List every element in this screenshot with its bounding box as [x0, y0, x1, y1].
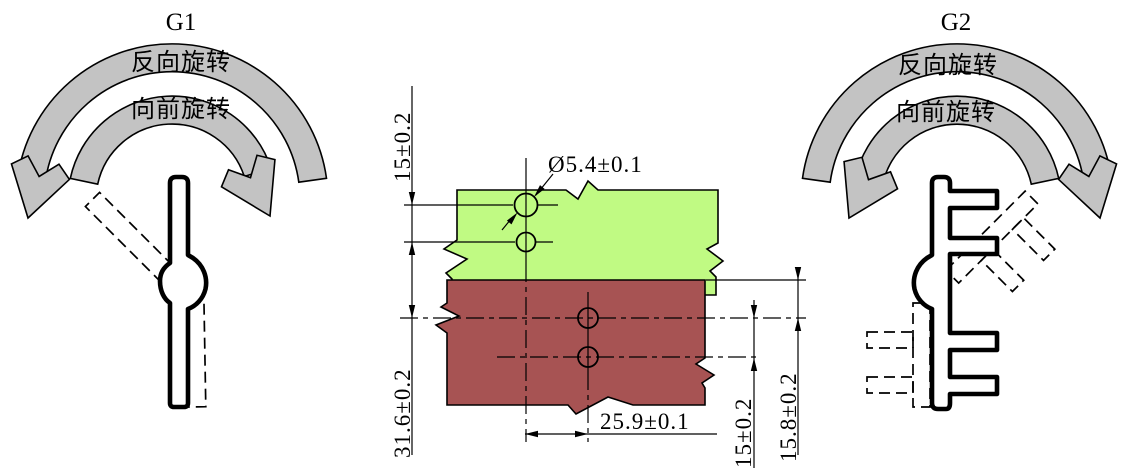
g1-title: G1	[166, 9, 197, 36]
arrow-right-bottom	[575, 431, 588, 437]
g2-lever-ghost-open	[867, 303, 930, 407]
arrow-down-right-inner	[751, 305, 757, 318]
dim-hole-diameter: Ø5.4±0.1	[548, 152, 643, 177]
dim-offset: 25.9±0.1	[600, 409, 690, 434]
mounting-plate-green	[444, 181, 723, 295]
arrow-up-right-inner	[751, 358, 757, 371]
rotation-figure-g2: G2 反向旋转 向前旋转	[803, 9, 1129, 409]
dim-green-to-red: 31.6±0.2	[390, 368, 415, 458]
arrow-down-red-top-hole	[409, 305, 415, 318]
dim-red-hole-pitch: 15±0.2	[731, 398, 756, 468]
arrow-left-bottom	[525, 431, 538, 437]
mounting-plates-drawing: 15±0.2 31.6±0.2 Ø5.4±0.1 25.9±0.1 15±0.2…	[390, 86, 806, 468]
g1-hinge-lever	[160, 177, 206, 407]
mounting-plate-red	[436, 280, 714, 414]
hinge-installation-diagram: 15±0.2 31.6±0.2 Ø5.4±0.1 25.9±0.1 15±0.2…	[0, 0, 1129, 476]
g1-forward-arrowhead-icon	[216, 149, 297, 230]
arrow-up-green-bottom	[409, 242, 415, 255]
g1-reverse-rotation-label: 反向旋转	[131, 48, 231, 76]
g2-hinge-lever	[914, 177, 997, 409]
arrow-up-right-outer	[795, 318, 801, 331]
g2-forward-rotation-label: 向前旋转	[896, 98, 996, 126]
diagram-canvas: 15±0.2 31.6±0.2 Ø5.4±0.1 25.9±0.1 15±0.2…	[0, 0, 1129, 476]
dim-green-hole-pitch: 15±0.2	[390, 112, 415, 182]
g2-title: G2	[941, 9, 972, 36]
rotation-figure-g1: G1 反向旋转 向前旋转	[0, 9, 327, 407]
g1-forward-rotation-label: 向前旋转	[131, 95, 231, 123]
dim-red-edge-to-hole: 15.8±0.2	[776, 372, 801, 462]
arrow-down-green-top	[409, 192, 415, 205]
g2-reverse-rotation-label: 反向旋转	[898, 51, 998, 79]
arrow-down-right-outer	[795, 267, 801, 280]
